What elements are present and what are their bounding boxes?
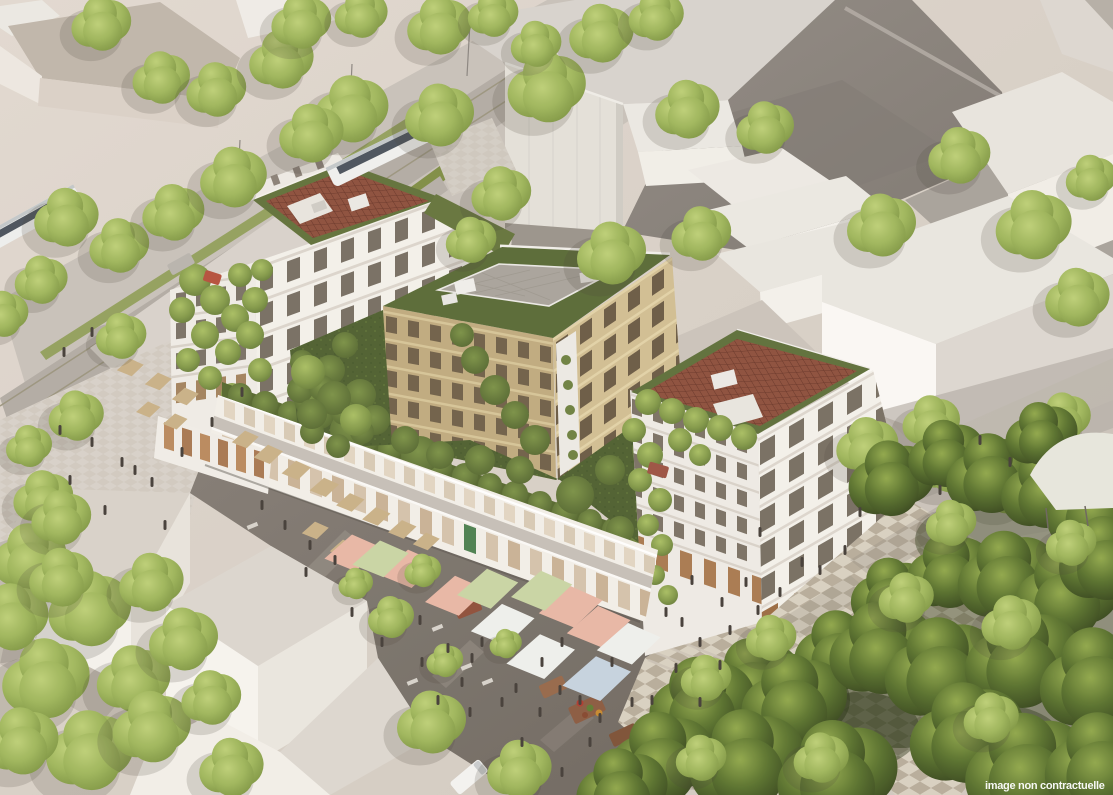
svg-text:image non contractuelle: image non contractuelle bbox=[985, 780, 1105, 792]
